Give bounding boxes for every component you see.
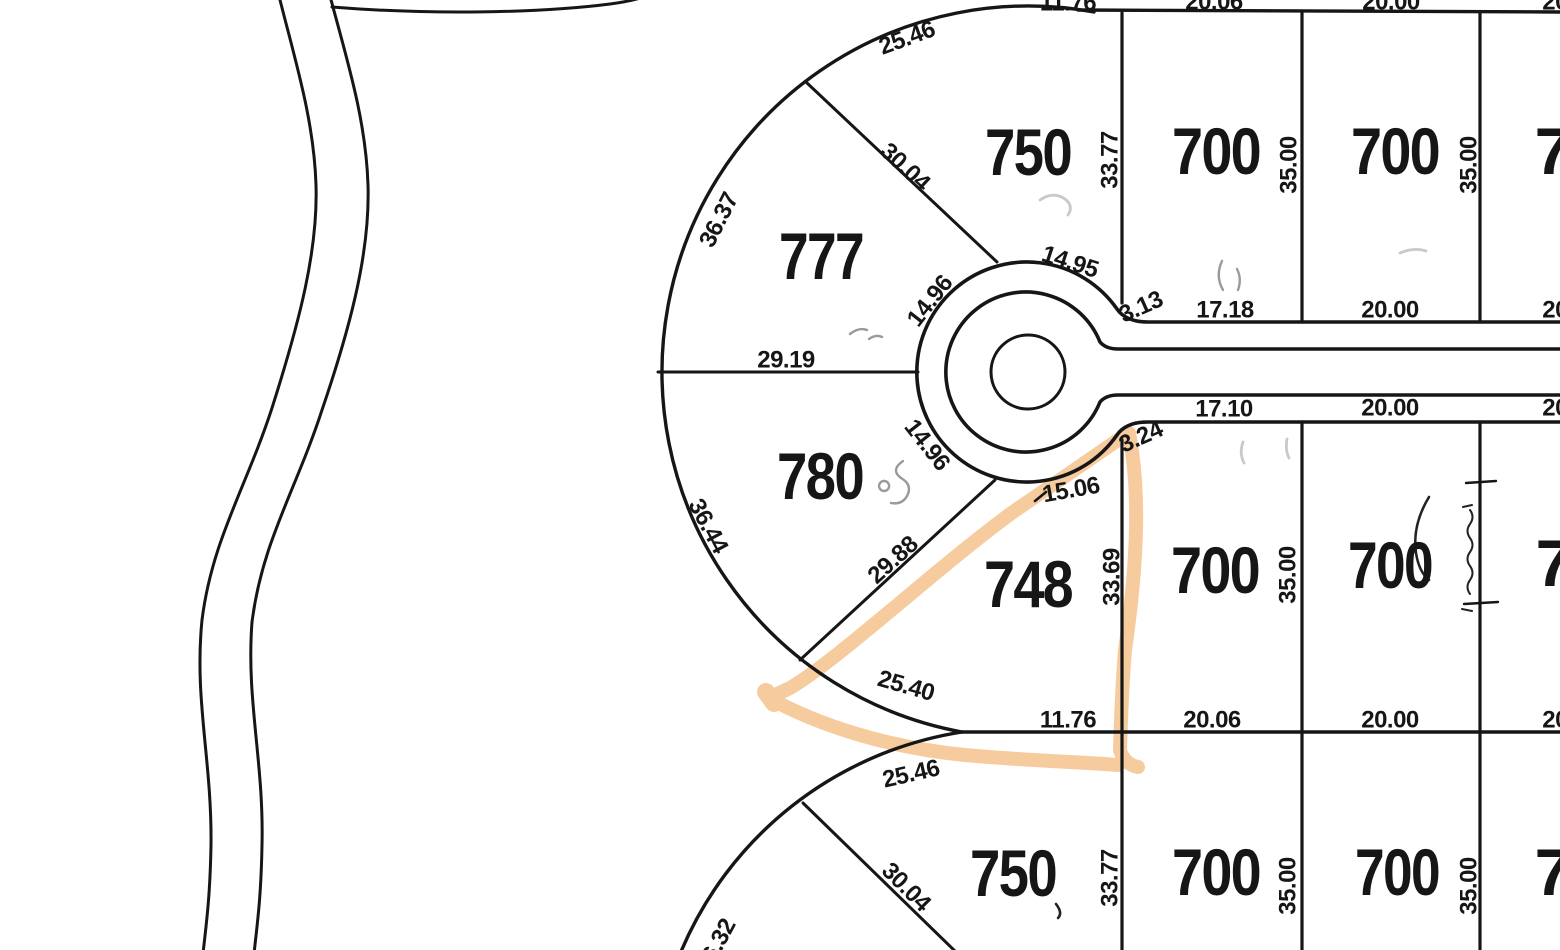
dim-11.76-top-edge: 11.76: [1040, 0, 1096, 17]
lot-number-780: 780: [777, 439, 863, 513]
dim-35.00-bottom-1: 35.00: [1275, 857, 1302, 915]
dim-20.00-front-top-clipped: 20.00: [1542, 297, 1560, 324]
lot-number-700-mid-2: 700: [1348, 528, 1432, 602]
dim-20.00-front-mid-clipped: 20.00: [1542, 395, 1560, 422]
dim-35.00-top-2: 35.00: [1456, 136, 1483, 194]
dim-17.18: 17.18: [1196, 297, 1254, 324]
dim-20.06-bottom: 20.06: [1183, 707, 1241, 734]
lot-number-748: 748: [984, 547, 1072, 621]
dim-29.19: 29.19: [757, 347, 815, 374]
plat-map-viewport: 777 780 750 700 700 7 748 700 700 7 750 …: [0, 0, 1560, 950]
dim-20.06-top-edge: 20.06: [1185, 0, 1243, 16]
rear-lot-line-top: [1078, 10, 1560, 12]
dim-20.00-front-top: 20.00: [1361, 297, 1419, 324]
lot-number-700-bottom-1: 700: [1172, 835, 1260, 909]
dim-20.00-front-mid: 20.00: [1361, 395, 1419, 422]
dim-17.10: 17.10: [1195, 396, 1253, 423]
dim-20.00-top-edge: 20.00: [1362, 0, 1420, 16]
lot-number-750-bottom: 750: [970, 836, 1056, 910]
lot-number-750-top: 750: [985, 115, 1071, 189]
dim-33.77-bottom: 33.77: [1097, 849, 1124, 907]
highlighter-blob-left-vertex: [766, 692, 774, 703]
plat-map-canvas: 777 780 750 700 700 7 748 700 700 7 750 …: [0, 0, 1560, 950]
dim-35.00-bottom-2: 35.00: [1456, 857, 1483, 915]
lot-number-777: 777: [779, 219, 863, 293]
lot-number-partial-top-3: 7: [1535, 114, 1560, 188]
dim-33.69: 33.69: [1099, 548, 1126, 606]
dim-20.00-bottom-clipped: 20.00: [1542, 707, 1560, 734]
lot-number-700-top-1: 700: [1172, 114, 1260, 188]
dim-33.77-top: 33.77: [1097, 131, 1124, 189]
dim-35.00-mid-1: 35.00: [1275, 546, 1302, 604]
lot-number-700-top-2: 700: [1351, 114, 1439, 188]
lot-number-700-bottom-2: 700: [1355, 835, 1439, 909]
lot-number-partial-bottom-3: 7: [1535, 835, 1560, 909]
dim-11.76-bottom: 11.76: [1040, 707, 1096, 734]
dim-35.00-top-1: 35.00: [1276, 136, 1303, 194]
dim-20.00-bottom: 20.00: [1361, 707, 1419, 734]
lot-number-700-mid-1: 700: [1171, 533, 1259, 607]
dim-20.00-top-edge-clipped: 20.00: [1542, 0, 1560, 16]
lot-number-partial-mid-3: 7: [1536, 526, 1560, 600]
